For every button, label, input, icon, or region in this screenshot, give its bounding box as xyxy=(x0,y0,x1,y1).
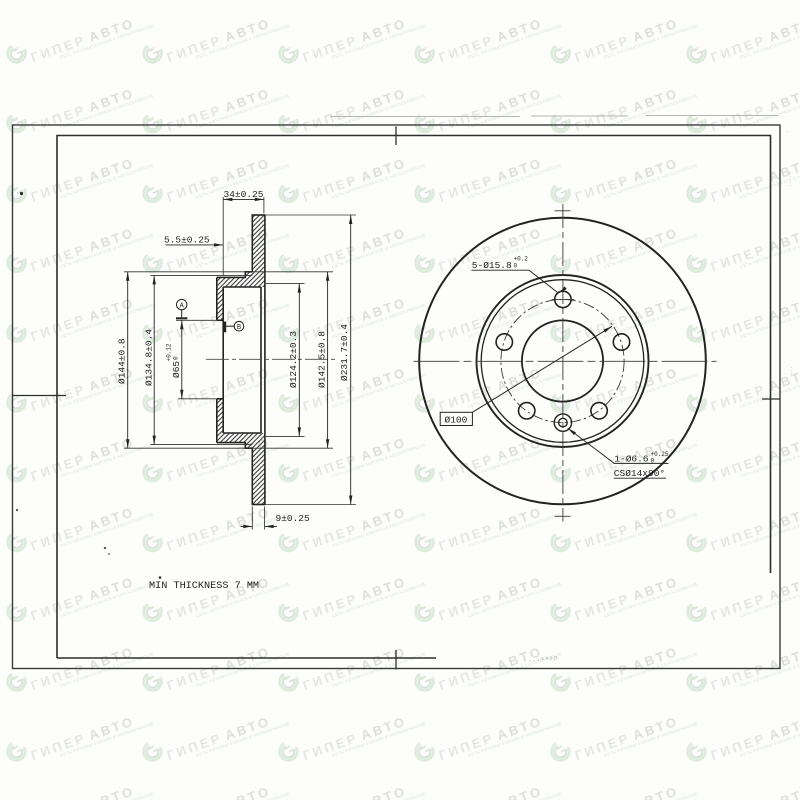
svg-text:.....: ..... xyxy=(787,172,793,187)
svg-text:+0.12: +0.12 xyxy=(166,343,173,361)
svg-text:34±0.25: 34±0.25 xyxy=(224,189,264,200)
svg-text:···¹⁴¹ᴼ: ···¹⁴¹ᴼ xyxy=(528,656,559,666)
svg-text:0: 0 xyxy=(514,263,518,270)
svg-text:0: 0 xyxy=(173,356,180,360)
svg-text:+0.2: +0.2 xyxy=(514,256,529,263)
svg-text:.: . xyxy=(786,128,789,134)
svg-text:9±0.25: 9±0.25 xyxy=(276,513,311,524)
svg-text:1-Ø6.6: 1-Ø6.6 xyxy=(614,453,649,464)
svg-text:Ø134.8±0.4: Ø134.8±0.4 xyxy=(144,329,155,386)
svg-text:CSØ14x90°: CSØ14x90° xyxy=(614,468,665,479)
svg-text:Ø100: Ø100 xyxy=(445,415,468,426)
svg-text:5.5±0.25: 5.5±0.25 xyxy=(164,235,210,246)
svg-text:Ø231.7±0.4: Ø231.7±0.4 xyxy=(339,324,350,381)
svg-text:...: ... xyxy=(788,366,794,375)
svg-text:Ø144±0.8: Ø144±0.8 xyxy=(117,338,128,384)
svg-text:Ø124.2±0.3: Ø124.2±0.3 xyxy=(288,331,299,388)
svg-text:Ø65: Ø65 xyxy=(171,361,182,378)
svg-text:B: B xyxy=(237,324,241,332)
svg-text:5-Ø15.8: 5-Ø15.8 xyxy=(472,260,512,271)
svg-text:MIN THICKNESS 7 MM: MIN THICKNESS 7 MM xyxy=(149,581,259,592)
svg-text:0: 0 xyxy=(651,458,655,465)
svg-text:Ø142.5±0.8: Ø142.5±0.8 xyxy=(316,331,327,388)
